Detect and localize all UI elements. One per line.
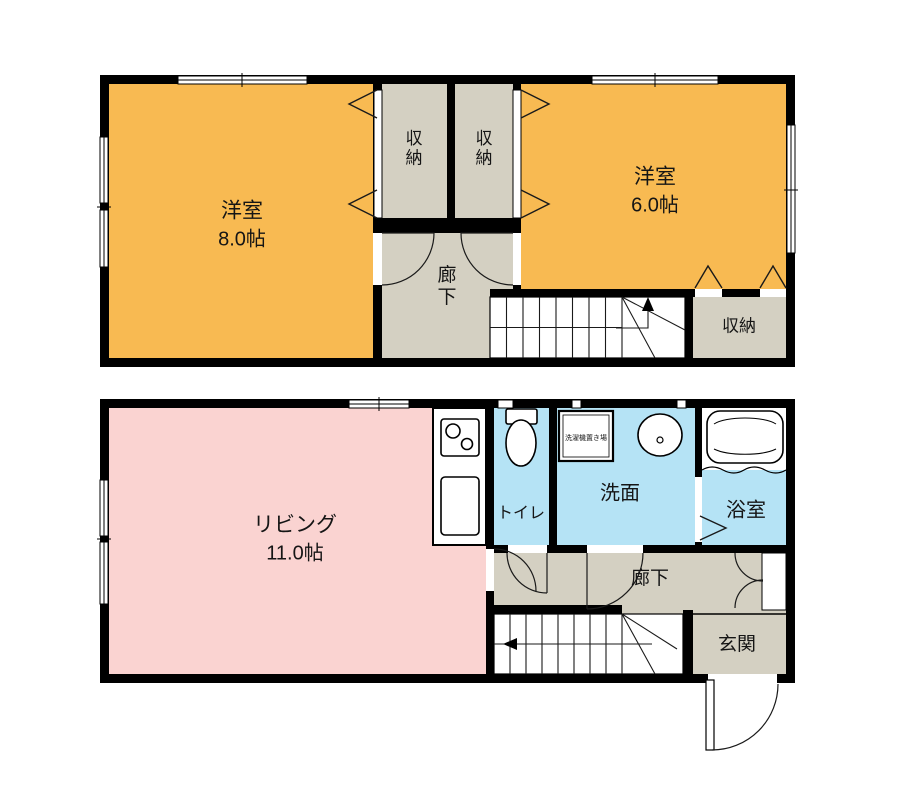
floorplan-drawing: 洋室 8.0帖 収納 収納 洋室 6.0帖 廊下 収納	[0, 0, 900, 800]
floor-2-plan: 洋室 8.0帖 収納 収納 洋室 6.0帖 廊下 収納	[97, 73, 798, 367]
kitchen-sink-icon	[441, 477, 479, 535]
entrance-opening	[708, 674, 777, 683]
stairs-icon	[490, 297, 685, 358]
toilet-label: トイレ	[497, 505, 545, 522]
closet-south-label: 収納	[722, 316, 756, 335]
hallway1-label: 廊下	[631, 567, 669, 589]
laundry-label: 洗濯機置き場	[565, 433, 607, 442]
toilet-icon	[506, 409, 537, 466]
kitchen-counter	[433, 408, 486, 545]
floor-1-plan: 洗濯機置き場	[97, 397, 795, 750]
sink-icon	[638, 414, 682, 456]
door-opening	[486, 549, 494, 591]
interior-wall	[486, 605, 622, 614]
room-west-area: 8.0帖	[218, 227, 266, 250]
hallway2-label: 廊下	[437, 264, 456, 308]
living-floor	[109, 408, 486, 674]
floorplan-canvas: 洋室 8.0帖 収納 収納 洋室 6.0帖 廊下 収納	[0, 0, 900, 800]
washroom-label: 洗面	[600, 481, 640, 504]
entrance-label: 玄関	[718, 633, 756, 655]
door-opening	[587, 545, 643, 553]
entrance-door	[706, 680, 778, 750]
living-area: 11.0帖	[266, 541, 323, 564]
closet-right-door-panel	[513, 90, 521, 218]
bathroom-label: 浴室	[726, 498, 766, 521]
closet-left-door-panel	[374, 90, 382, 218]
closet-right-label: 収納	[476, 129, 493, 168]
door-opening	[695, 477, 702, 542]
room-east-label: 洋室	[634, 166, 676, 189]
closet-left-label: 収納	[406, 129, 423, 168]
door-opening	[373, 233, 382, 285]
hall-closet	[762, 553, 786, 610]
door-opening	[513, 233, 521, 285]
room-west-label: 洋室	[221, 200, 263, 223]
stairs-icon	[494, 614, 683, 674]
closet-opening	[695, 289, 722, 297]
living-label: リビング	[253, 514, 337, 537]
room-east-area: 6.0帖	[631, 193, 679, 216]
washing-machine-area: 洗濯機置き場	[559, 411, 613, 461]
closet-opening	[760, 289, 786, 297]
door-opening	[508, 545, 547, 553]
stove-icon	[441, 419, 479, 456]
interior-wall	[683, 610, 693, 674]
